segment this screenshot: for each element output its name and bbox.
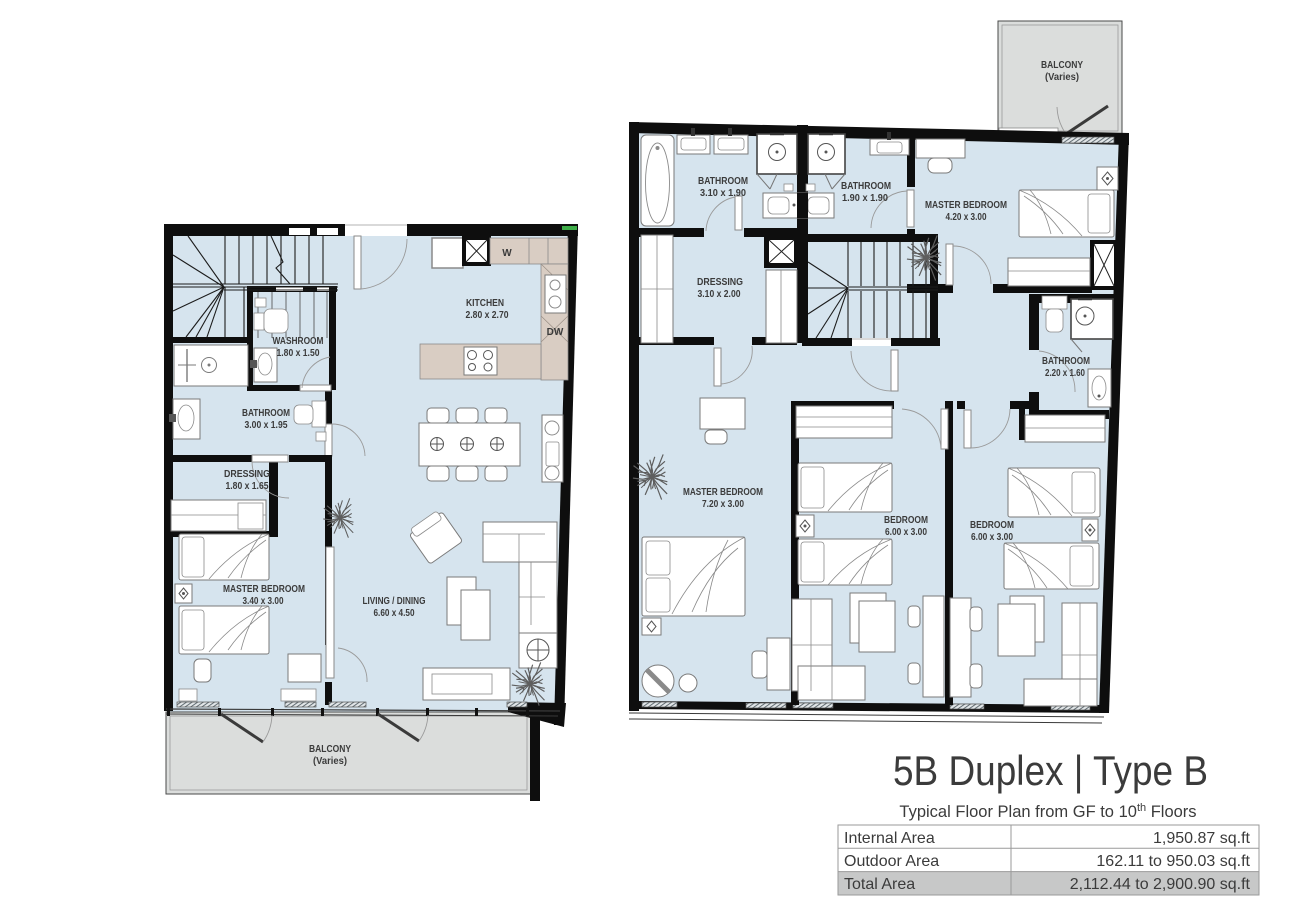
svg-text:KITCHEN: KITCHEN — [466, 298, 504, 309]
svg-text:Outdoor Area: Outdoor Area — [844, 853, 939, 870]
svg-text:6.60 x 4.50: 6.60 x 4.50 — [374, 608, 415, 619]
svg-text:1.90 x 1.90: 1.90 x 1.90 — [842, 193, 888, 204]
svg-text:BATHROOM: BATHROOM — [841, 181, 891, 192]
svg-text:BEDROOM: BEDROOM — [970, 520, 1014, 531]
svg-text:Internal Area: Internal Area — [844, 830, 935, 847]
svg-text:1,950.87 sq.ft: 1,950.87 sq.ft — [1153, 830, 1251, 847]
svg-text:6.00 x 3.00: 6.00 x 3.00 — [885, 527, 927, 538]
svg-text:LIVING / DINING: LIVING / DINING — [363, 596, 426, 607]
svg-text:2.20 x 1.60: 2.20 x 1.60 — [1045, 368, 1085, 379]
svg-text:2.80 x 2.70: 2.80 x 2.70 — [466, 310, 509, 321]
svg-text:7.20 x 3.00: 7.20 x 3.00 — [702, 499, 744, 510]
svg-text:3.00 x 1.95: 3.00 x 1.95 — [245, 420, 288, 431]
svg-text:BATHROOM: BATHROOM — [242, 408, 290, 419]
svg-text:3.40 x 3.00: 3.40 x 3.00 — [243, 596, 284, 607]
svg-text:BATHROOM: BATHROOM — [1042, 356, 1090, 367]
svg-text:BEDROOM: BEDROOM — [884, 515, 928, 526]
svg-text:2,112.44 to 2,900.90 sq.ft: 2,112.44 to 2,900.90 sq.ft — [1070, 876, 1251, 893]
svg-text:3.10 x 2.00: 3.10 x 2.00 — [698, 289, 741, 300]
svg-text:(Varies): (Varies) — [1045, 72, 1079, 83]
svg-text:MASTER BEDROOM: MASTER BEDROOM — [683, 487, 763, 498]
svg-text:W: W — [502, 248, 512, 259]
svg-text:Total Area: Total Area — [844, 876, 915, 893]
svg-text:162.11 to 950.03 sq.ft: 162.11 to 950.03 sq.ft — [1096, 853, 1250, 870]
svg-text:(Varies): (Varies) — [313, 756, 347, 767]
svg-text:5B Duplex | Type B: 5B Duplex | Type B — [893, 747, 1208, 794]
svg-text:DRESSING: DRESSING — [224, 469, 270, 480]
svg-text:6.00 x 3.00: 6.00 x 3.00 — [971, 532, 1013, 543]
svg-text:BATHROOM: BATHROOM — [698, 176, 748, 187]
svg-text:DRESSING: DRESSING — [697, 277, 743, 288]
svg-text:1.80 x 1.65: 1.80 x 1.65 — [226, 481, 269, 492]
svg-text:BALCONY: BALCONY — [1041, 60, 1083, 71]
svg-text:BALCONY: BALCONY — [309, 744, 351, 755]
svg-text:1.80 x 1.50: 1.80 x 1.50 — [277, 348, 320, 359]
svg-text:3.10 x 1.90: 3.10 x 1.90 — [700, 188, 746, 199]
svg-text:MASTER BEDROOM: MASTER BEDROOM — [925, 200, 1007, 211]
svg-text:Typical Floor Plan from GF to: Typical Floor Plan from GF to 10th Floor… — [899, 802, 1196, 821]
svg-text:WASHROOM: WASHROOM — [273, 336, 324, 347]
svg-text:DW: DW — [547, 327, 564, 338]
svg-text:MASTER BEDROOM: MASTER BEDROOM — [223, 584, 305, 595]
svg-text:4.20 x 3.00: 4.20 x 3.00 — [946, 212, 987, 223]
